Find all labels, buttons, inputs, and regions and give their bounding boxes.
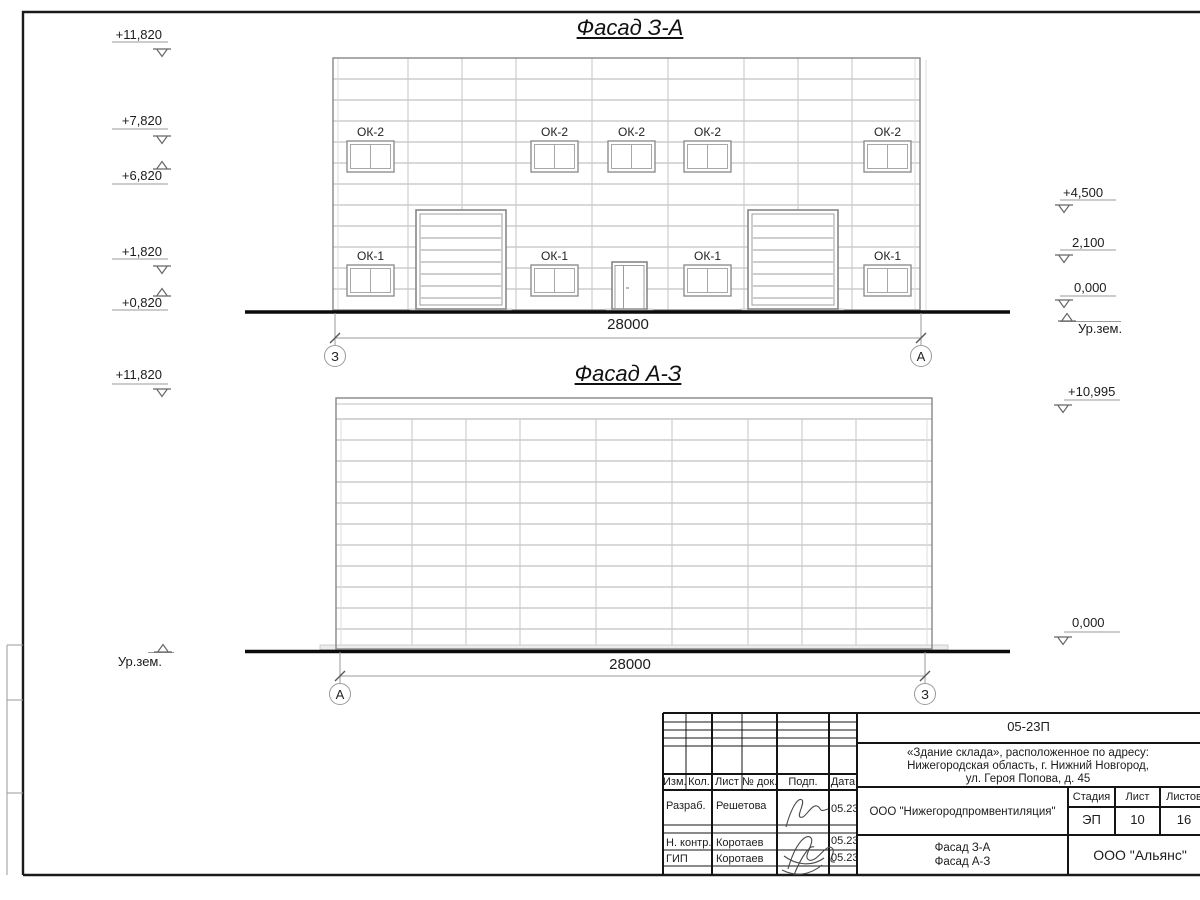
drawing-title-line: Фасад А-З xyxy=(857,856,1068,869)
elevation-mark: 2,100 xyxy=(1072,236,1105,251)
signature-2 xyxy=(782,837,835,875)
stage-label: Стадия xyxy=(1068,791,1115,803)
window-label-ok1: ОК-1 xyxy=(684,249,731,263)
drawing-sheet: Фасад З-А ОК-2 ОК-2 ОК-2 ОК-2 ОК-2 ОК-1 … xyxy=(0,0,1200,900)
window-label-ok1: ОК-1 xyxy=(347,249,394,263)
design-organization: ООО "Нижегородпромвентиляция" xyxy=(859,806,1066,819)
facade-a3-title: Фасад А-З xyxy=(478,362,778,387)
sign-name: Коротаев xyxy=(716,853,764,865)
window-label-ok1: ОК-1 xyxy=(531,249,578,263)
sign-role: Н. контр. xyxy=(666,837,711,849)
elevation-mark: +4,500 xyxy=(1063,186,1103,201)
sign-name: Коротаев xyxy=(716,837,764,849)
sheet-value: 10 xyxy=(1115,813,1160,828)
sheets-label: Листов xyxy=(1160,791,1200,803)
gate-1 xyxy=(416,210,506,309)
axis-letter-1-right: А xyxy=(910,349,932,364)
drawing-title-line: Фасад З-А xyxy=(857,842,1068,855)
project-code: 05-23П xyxy=(857,720,1200,735)
col-header-kol: Кол. xyxy=(686,776,712,788)
col-header-data: Дата xyxy=(829,776,857,788)
elevation-mark: +11,820 xyxy=(98,368,162,383)
sign-role: Разраб. xyxy=(666,800,706,812)
window-label-ok2: ОК-2 xyxy=(608,125,655,139)
axis-letter-2-right: З xyxy=(914,687,936,702)
facade-3a-title: Фасад З-А xyxy=(480,16,780,41)
signature-1 xyxy=(786,799,828,827)
company-name: ООО "Альянс" xyxy=(1070,848,1200,864)
col-header-list: Лист xyxy=(712,776,742,788)
project-address-line: Нижегородская область, г. Нижний Новгоро… xyxy=(858,760,1198,773)
window-label-ok2: ОК-2 xyxy=(347,125,394,139)
gate-2 xyxy=(748,210,838,309)
elevation-mark: +11,820 xyxy=(98,28,162,43)
project-address-line: ул. Героя Попова, д. 45 xyxy=(858,773,1198,786)
dimension-label-2: 28000 xyxy=(530,657,730,674)
entrance-door xyxy=(612,262,647,309)
project-address-line: «Здание склада», расположенное по адресу… xyxy=(858,747,1198,760)
elevation-mark: 0,000 xyxy=(1072,616,1105,631)
col-header-izm: Изм. xyxy=(663,776,686,788)
ground-level-label: Ур.зем. xyxy=(98,655,162,670)
stage-value: ЭП xyxy=(1068,813,1115,828)
axis-letter-1-left: З xyxy=(324,349,346,364)
sign-name: Решетова xyxy=(716,800,766,812)
sheets-value: 16 xyxy=(1160,813,1200,828)
axis-letter-2-left: А xyxy=(329,687,351,702)
sheet-label: Лист xyxy=(1115,791,1160,803)
sign-date: 05.23 xyxy=(831,803,859,815)
window-label-ok2: ОК-2 xyxy=(684,125,731,139)
sign-date: 05.23 xyxy=(831,835,859,847)
ground-level-label: Ур.зем. xyxy=(1078,322,1122,337)
col-header-ndok: № док. xyxy=(742,776,777,788)
left-margin-cells xyxy=(7,645,23,875)
window-label-ok2: ОК-2 xyxy=(531,125,578,139)
window-label-ok2: ОК-2 xyxy=(864,125,911,139)
elevation-mark: +0,820 xyxy=(98,296,162,311)
elevation-mark: 0,000 xyxy=(1074,281,1107,296)
window-label-ok1: ОК-1 xyxy=(864,249,911,263)
elevation-mark: +10,995 xyxy=(1068,385,1115,400)
col-header-podp: Подп. xyxy=(777,776,829,788)
elevation-mark: +1,820 xyxy=(98,245,162,260)
sign-role: ГИП xyxy=(666,853,688,865)
dimension-label-1: 28000 xyxy=(528,317,728,334)
elevation-mark: +7,820 xyxy=(98,114,162,129)
sign-date: 05.23 xyxy=(831,852,859,864)
elevation-mark: +6,820 xyxy=(98,169,162,184)
